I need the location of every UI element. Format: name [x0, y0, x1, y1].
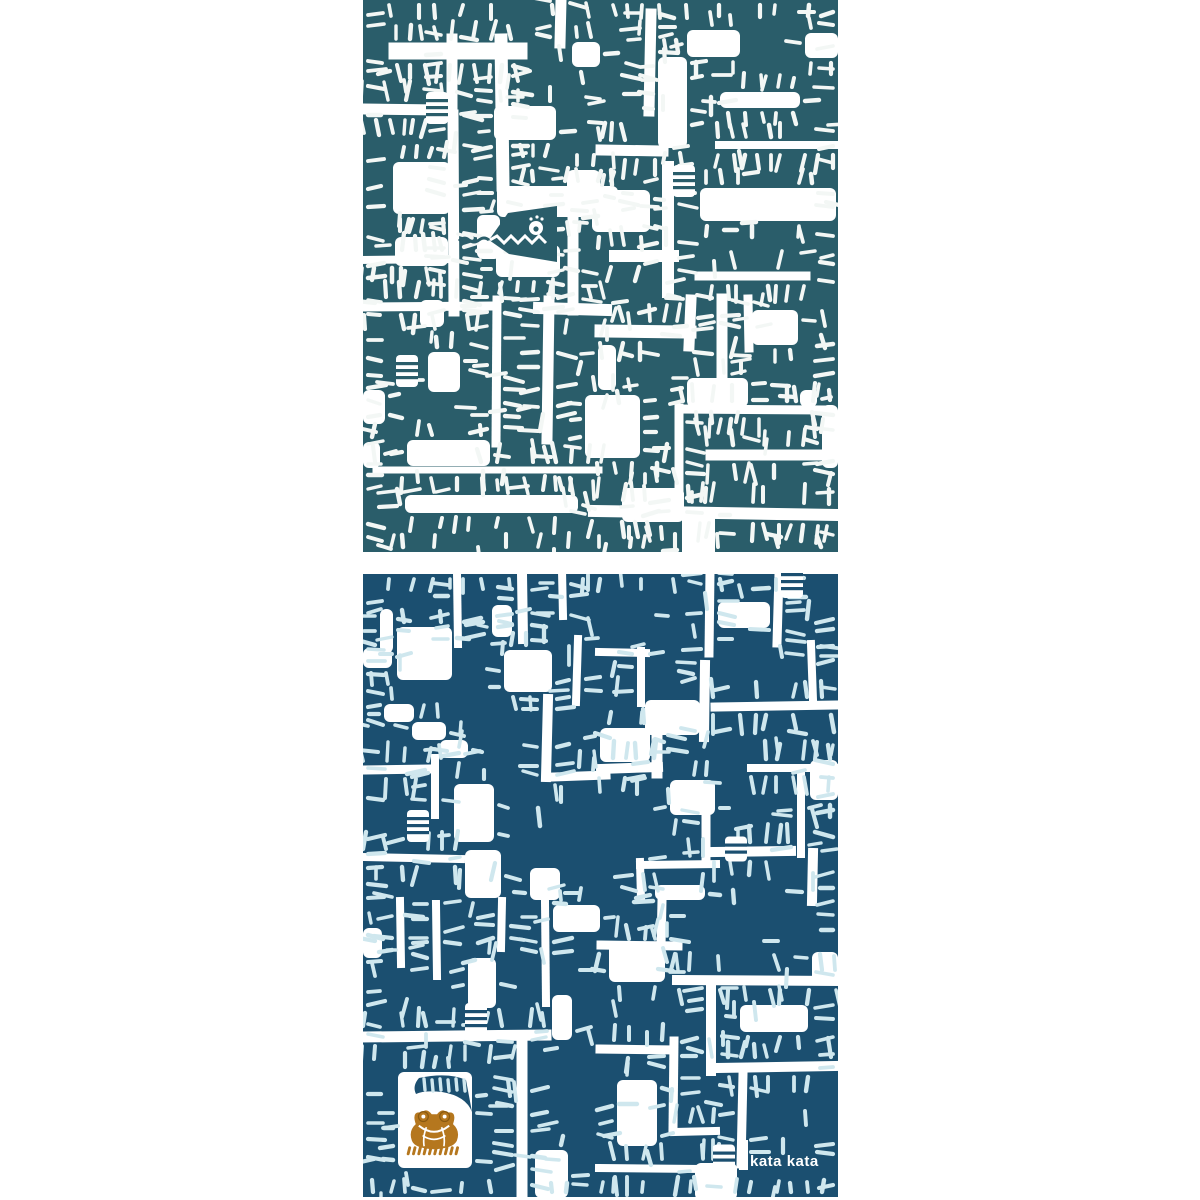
svg-text:kata kata: kata kata [750, 1153, 819, 1170]
